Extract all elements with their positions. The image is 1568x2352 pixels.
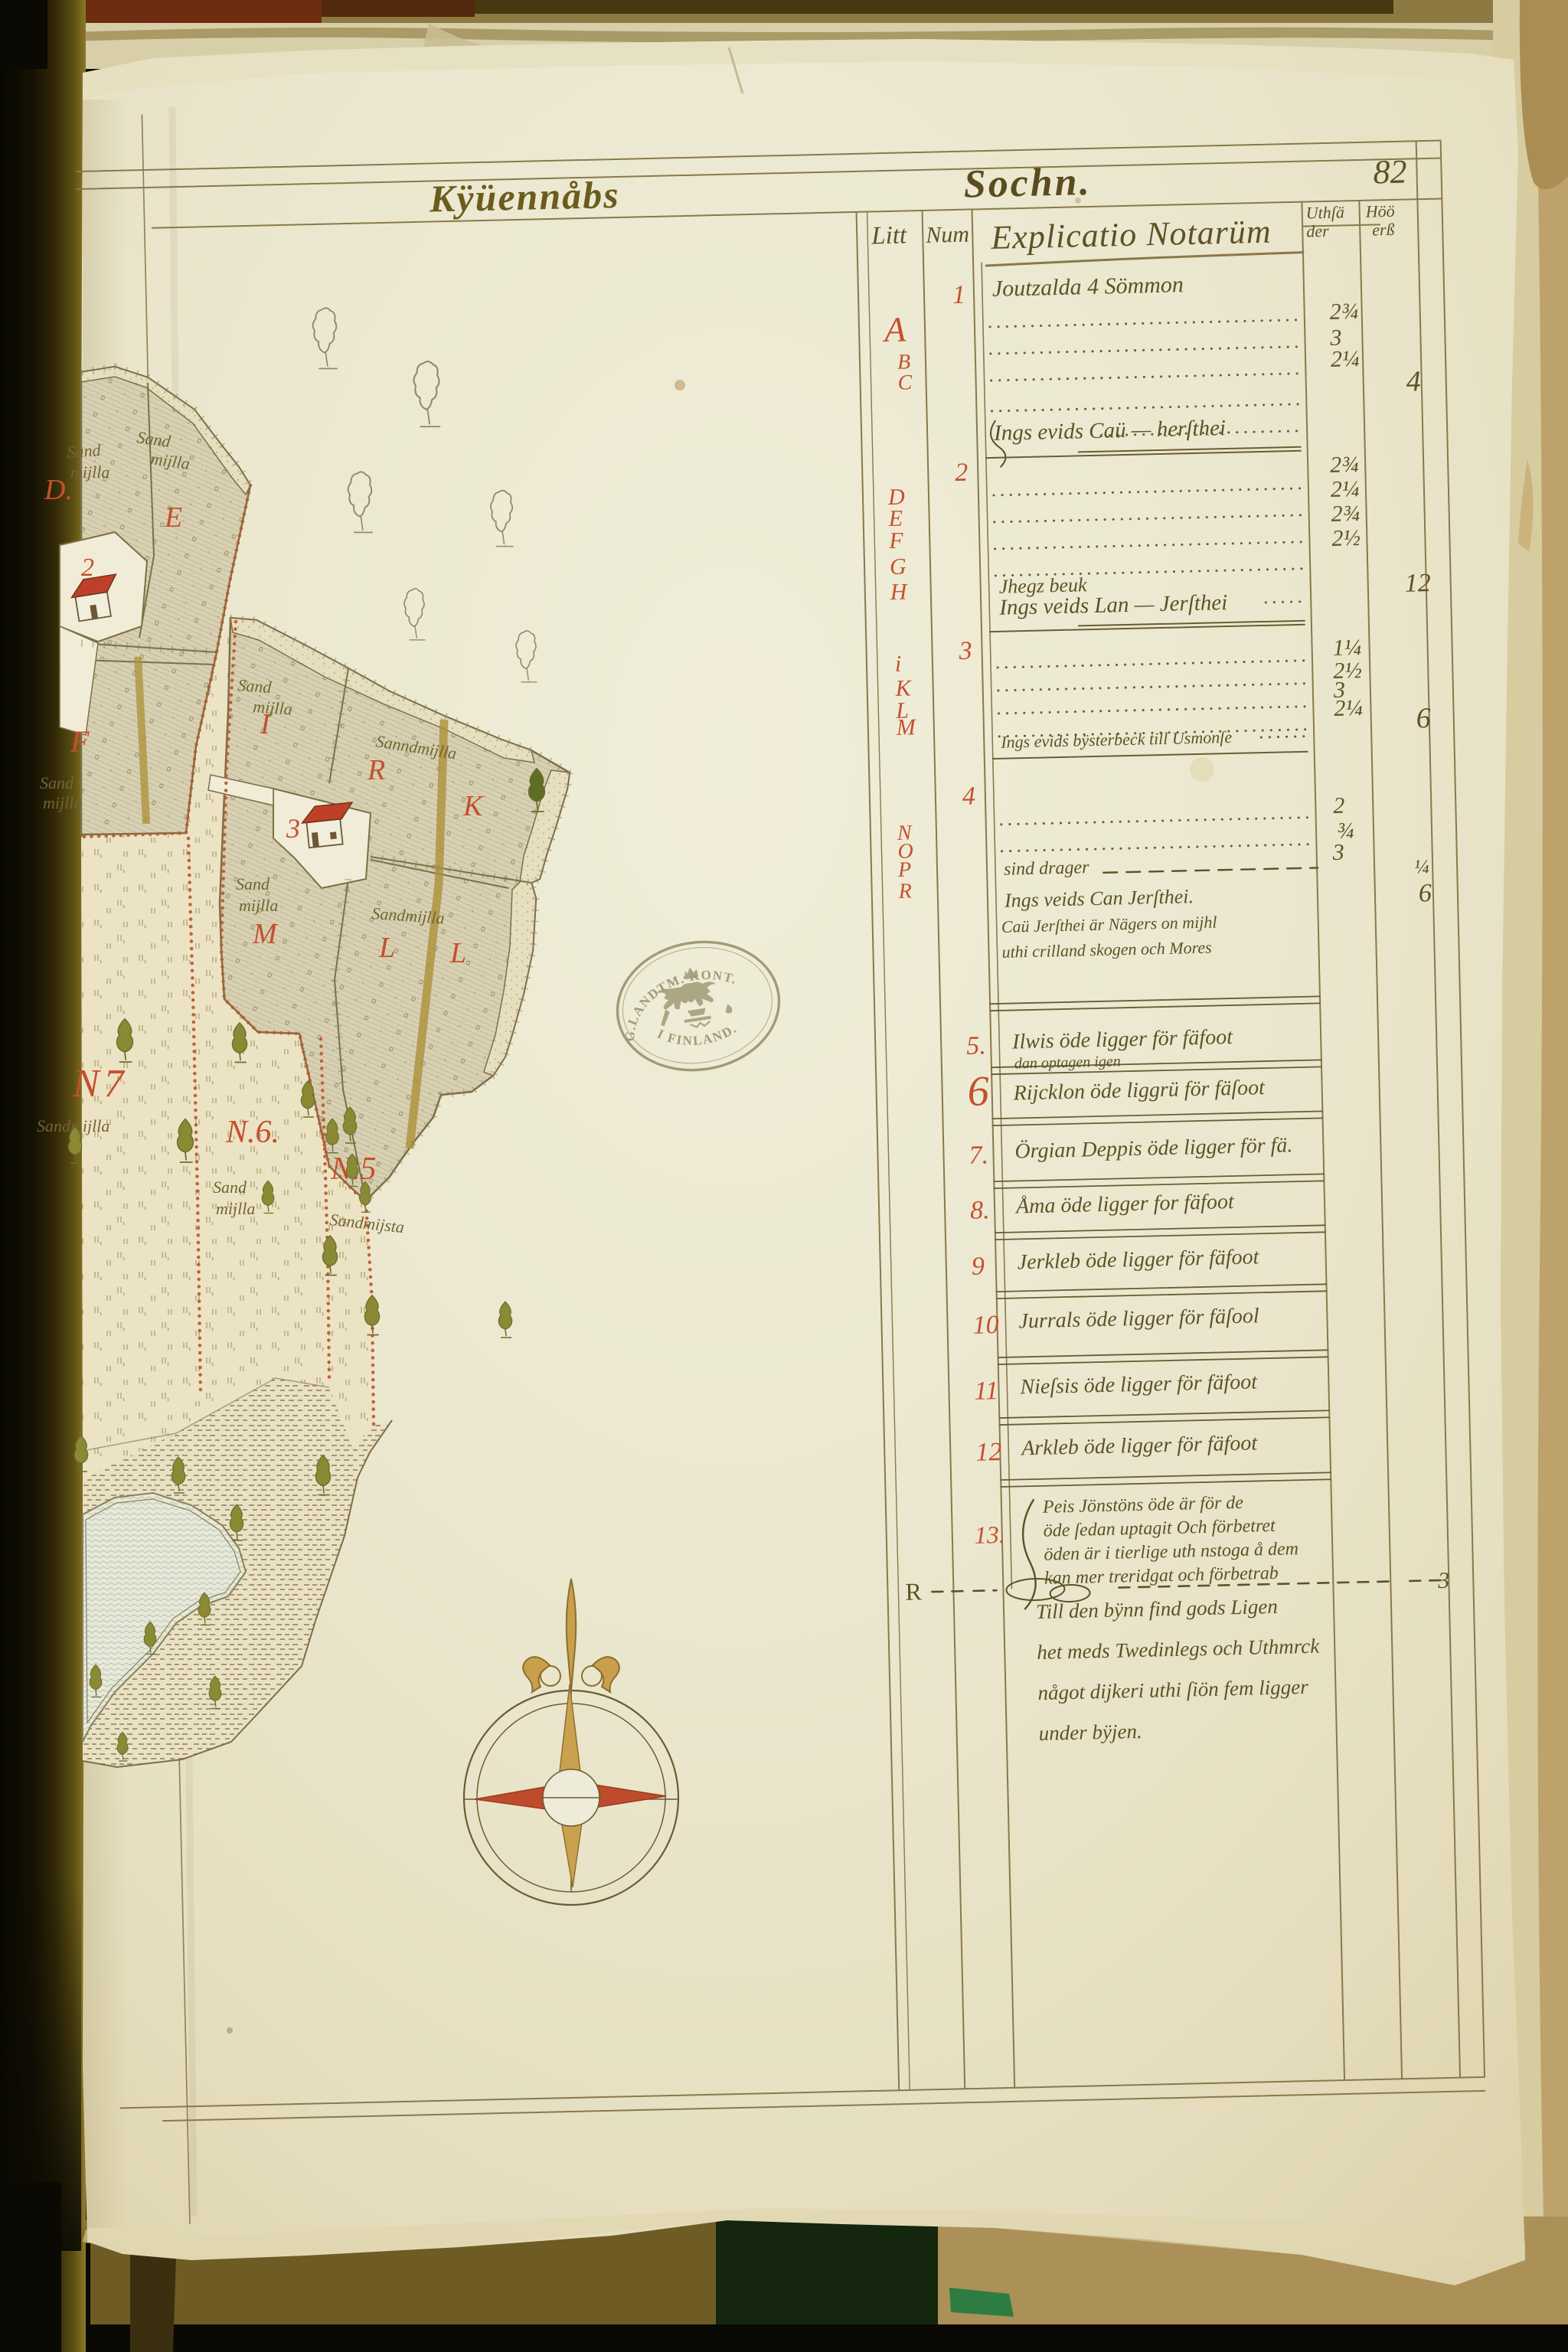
svg-text:6: 6 — [967, 1067, 989, 1116]
svg-text:2: 2 — [81, 554, 94, 582]
svg-text:3: 3 — [1331, 840, 1344, 865]
svg-text:12: 12 — [1404, 569, 1431, 598]
svg-text:6: 6 — [1419, 879, 1432, 907]
svg-text:3: 3 — [286, 813, 300, 844]
svg-text:Ings veids Lan — Jerſthei: Ings veids Lan — Jerſthei — [998, 590, 1228, 620]
svg-text:dan optagen igen: dan optagen igen — [1014, 1053, 1121, 1072]
svg-text:Sand: Sand — [213, 1178, 247, 1197]
svg-text:C: C — [897, 371, 913, 394]
svg-text:i: i — [895, 652, 902, 677]
svg-text:Num: Num — [925, 222, 969, 248]
svg-text:Sochn.: Sochn. — [963, 160, 1092, 207]
svg-text:G: G — [890, 554, 907, 580]
svg-text:4: 4 — [962, 782, 975, 811]
svg-text:der: der — [1306, 221, 1329, 241]
svg-text:P: P — [897, 857, 912, 881]
svg-text:3: 3 — [958, 637, 972, 665]
svg-text:2¾: 2¾ — [1329, 299, 1358, 325]
svg-text:Sand: Sand — [236, 874, 270, 893]
svg-text:E: E — [164, 501, 182, 534]
svg-text:Kÿüennåbs: Kÿüennåbs — [428, 173, 620, 220]
svg-text:M: M — [252, 918, 279, 950]
svg-text:sind drager: sind drager — [1004, 857, 1090, 880]
svg-text:8.: 8. — [970, 1196, 990, 1225]
svg-text:F: F — [70, 724, 90, 759]
svg-text:2: 2 — [955, 459, 969, 487]
svg-text:4: 4 — [1406, 365, 1421, 397]
svg-text:Sand: Sand — [40, 773, 74, 792]
svg-text:D.: D. — [44, 474, 73, 506]
svg-text:11: 11 — [974, 1377, 998, 1406]
svg-text:N.6.: N.6. — [225, 1115, 279, 1150]
svg-text:M: M — [895, 714, 917, 740]
svg-text:R: R — [905, 1577, 923, 1605]
svg-text:Uthſä: Uthſä — [1305, 202, 1344, 222]
svg-text:3: 3 — [1437, 1568, 1450, 1593]
svg-text:2¼: 2¼ — [1331, 476, 1360, 502]
svg-text:2¾: 2¾ — [1331, 501, 1360, 527]
svg-text:1¼: 1¼ — [1332, 635, 1361, 661]
svg-text:F: F — [888, 528, 904, 554]
svg-text:mijlla: mijlla — [43, 793, 82, 812]
svg-text:Explicatio Notarüm: Explicatio Notarüm — [990, 213, 1272, 256]
svg-text:under bÿjen.: under bÿjen. — [1038, 1720, 1142, 1745]
svg-text:Joutzalda 4 Sömmon: Joutzalda 4 Sömmon — [992, 272, 1184, 302]
svg-text:R: R — [367, 754, 385, 786]
svg-text:K: K — [462, 790, 484, 822]
svg-text:A: A — [881, 309, 906, 349]
svg-text:9: 9 — [971, 1252, 985, 1280]
svg-text:L: L — [378, 932, 395, 964]
svg-text:mijlla: mijlla — [253, 697, 293, 719]
svg-text:N7: N7 — [72, 1062, 129, 1106]
svg-text:2½: 2½ — [1331, 525, 1361, 551]
svg-text:82: 82 — [1373, 153, 1407, 191]
svg-text:5.: 5. — [966, 1031, 986, 1060]
svg-text:10: 10 — [972, 1311, 999, 1340]
svg-text:7.: 7. — [969, 1141, 988, 1170]
svg-text:L: L — [449, 937, 466, 969]
svg-text:13.: 13. — [974, 1521, 1005, 1549]
svg-text:2¾: 2¾ — [1330, 452, 1359, 478]
svg-text:Höö: Höö — [1364, 201, 1394, 221]
svg-text:Sand: Sand — [67, 440, 103, 462]
svg-text:12: 12 — [975, 1438, 1002, 1467]
svg-text:mijlla: mijlla — [70, 462, 109, 482]
svg-text:mijlla: mijlla — [239, 896, 278, 915]
svg-text:2¼: 2¼ — [1331, 346, 1360, 372]
svg-text:Åma öde ligger for fäfoot: Åma öde ligger for fäfoot — [1014, 1190, 1235, 1219]
svg-text:Ings veids Cаn Jerſthei.: Ings veids Cаn Jerſthei. — [1004, 885, 1194, 912]
svg-text:R: R — [897, 879, 912, 903]
svg-text:Litt: Litt — [871, 221, 907, 250]
svg-text:1: 1 — [952, 281, 966, 309]
svg-text:¼: ¼ — [1414, 855, 1429, 877]
svg-text:erß: erß — [1372, 220, 1395, 240]
svg-text:Sand: Sand — [237, 675, 273, 697]
svg-text:mijlla: mijlla — [216, 1199, 255, 1218]
svg-text:2: 2 — [1333, 793, 1345, 818]
svg-text:H: H — [889, 579, 909, 605]
svg-text:6: 6 — [1416, 702, 1431, 734]
svg-text:Ilwis öde ligger för fäfoot: Ilwis öde ligger för fäfoot — [1011, 1025, 1234, 1054]
svg-text:2¼: 2¼ — [1334, 695, 1363, 721]
